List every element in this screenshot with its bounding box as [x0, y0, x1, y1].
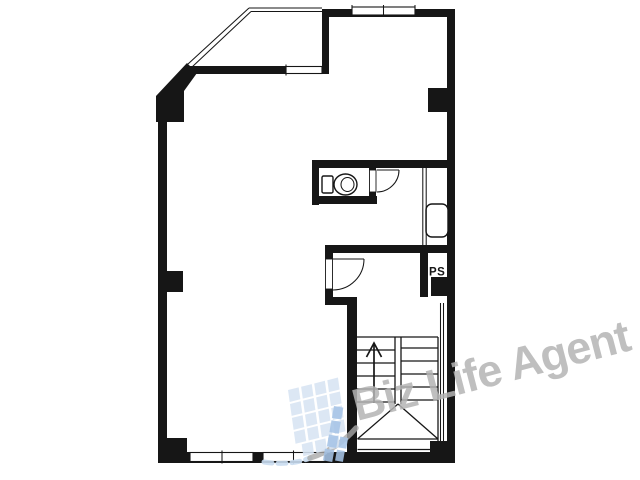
floor-plan-svg: PS	[0, 0, 640, 480]
floor-plan-page: PS	[0, 0, 640, 480]
toilet-tank	[322, 176, 333, 193]
wall-hall-left-upper	[325, 253, 333, 259]
pillar-left-bottom	[158, 438, 187, 462]
wall-toilet-right-lower	[369, 192, 376, 204]
wall-washroom-bottom	[325, 245, 447, 253]
pipe-shaft-fill	[431, 277, 451, 296]
bathtub-icon	[426, 204, 448, 237]
wall-balcony-front	[190, 66, 286, 74]
door-jamb	[370, 170, 377, 192]
pillar-left-mid	[159, 271, 183, 292]
wall-toilet-bottom	[312, 196, 377, 204]
ps-label: PS	[429, 267, 445, 279]
wall-ps-left	[420, 253, 428, 297]
window-icon	[286, 67, 322, 74]
door-jamb	[326, 259, 333, 289]
pillar-right-top	[428, 88, 452, 112]
pillar-right-bottom	[430, 441, 453, 462]
wall-balcony-side	[322, 9, 329, 74]
wall-toilet-right-upper	[369, 166, 376, 170]
toilet-icon	[322, 174, 357, 195]
wall-sanitary-top	[312, 160, 447, 168]
